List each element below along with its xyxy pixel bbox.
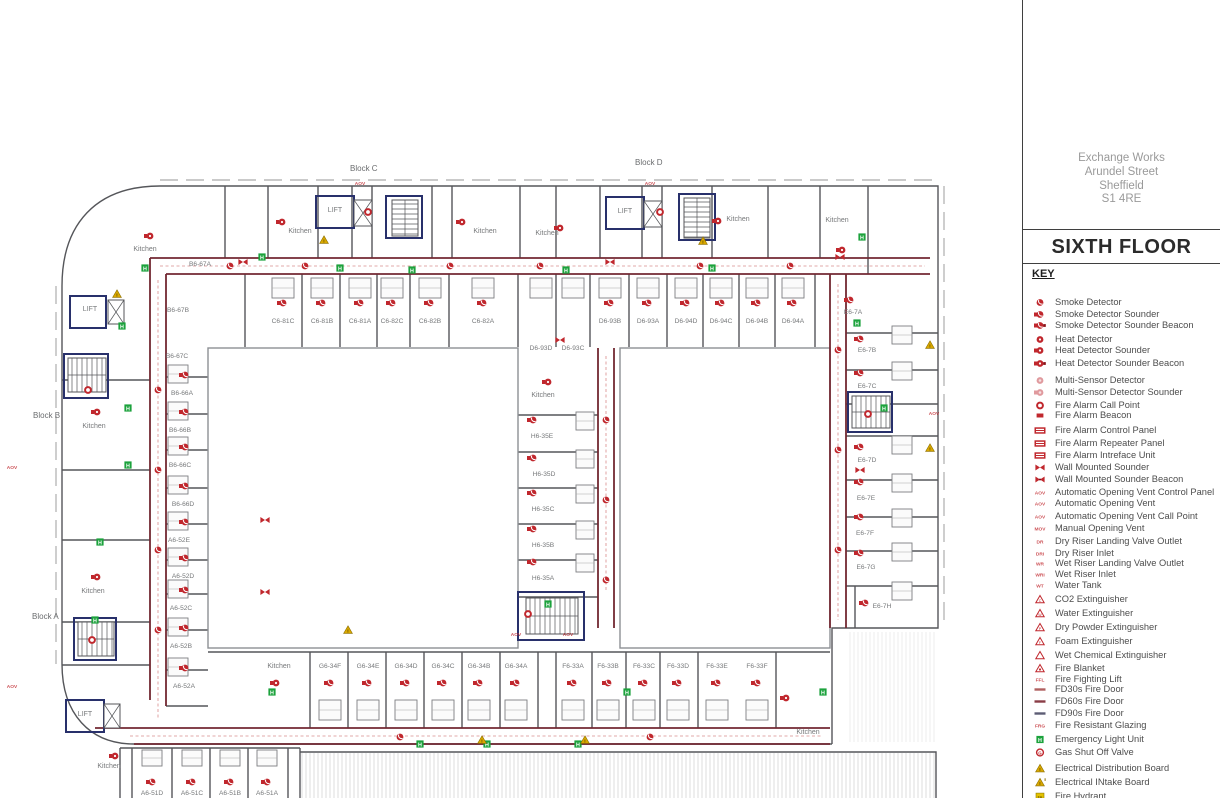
legend-label: FD30s Fire Door (1055, 684, 1124, 694)
room-label: G6-34C (431, 663, 454, 670)
svg-text:H: H (1038, 737, 1042, 743)
smoke-detector-icon (155, 547, 162, 554)
room-label: A6-52D (172, 573, 195, 580)
svg-text:!: ! (116, 293, 117, 298)
electrical-board-icon: ! (926, 341, 935, 349)
emergency-light-icon: H (91, 616, 98, 624)
smoke-detector-sounder-icon (186, 779, 195, 786)
legend-label: FD60s Fire Door (1055, 696, 1124, 706)
kitchen-label: Kitchen (473, 228, 496, 235)
block-label: Block A (32, 612, 59, 621)
legend-label: Dry Riser Landing Valve Outlet (1055, 536, 1182, 546)
fd30s-fire-door-icon (1032, 684, 1047, 695)
floor-title: SIXTH FLOOR (1023, 236, 1220, 259)
block-label: Block B (33, 411, 60, 420)
smoke-detector-sounder-icon (854, 514, 863, 521)
heat-detector-sounder-icon (270, 680, 279, 687)
legend-item: Wall Mounted Sounder Beacon (1032, 473, 1183, 485)
svg-text:AOV: AOV (645, 181, 656, 187)
emergency-light-icon: H (336, 264, 343, 272)
svg-text:H: H (338, 266, 342, 272)
legend-item: DRDry Riser Landing Valve Outlet (1032, 535, 1182, 547)
svg-text:H: H (625, 690, 629, 696)
wall-sounder-icon (835, 254, 844, 260)
smoke-detector-sounder-icon (854, 336, 863, 343)
room-label: E6-7G (856, 564, 875, 571)
svg-text:G: G (1038, 750, 1042, 755)
room-label: F6-33F (746, 663, 767, 670)
automatic-opening-vent-icon: AOV (1032, 498, 1047, 509)
legend-label: Heat Detector Sounder Beacon (1055, 358, 1184, 368)
smoke-detector-sounder-icon (261, 779, 270, 786)
lift-label: LIFT (328, 207, 343, 214)
wall-sounder-icon (855, 467, 864, 473)
kitchen-label: Kitchen (825, 217, 848, 224)
room-label: D6-93C (562, 345, 585, 352)
staircase (526, 598, 578, 634)
smoke-detector-sounder-icon (642, 300, 651, 307)
gas-shut-off-valve-icon: G (1032, 747, 1047, 758)
foam-extinguisher-icon: F (1032, 636, 1047, 647)
room-label: E6-7C (858, 383, 877, 390)
smoke-detector-sounder-icon (473, 680, 482, 687)
svg-text:!: ! (323, 239, 324, 244)
legend-label: Heat Detector (1055, 334, 1112, 344)
smoke-detector-sounder-icon (638, 680, 647, 687)
smoke-detector-sounder-icon (224, 779, 233, 786)
svg-text:AOV: AOV (7, 465, 18, 471)
heat-detector-sounder-icon (91, 409, 100, 416)
room-label: F6-33B (597, 663, 619, 670)
emergency-light-icon: H (623, 688, 630, 696)
smoke-detector-icon (835, 347, 842, 354)
legend-label: Wet Riser Inlet (1055, 569, 1116, 579)
kitchen-label: Kitchen (81, 588, 104, 595)
svg-text:WR: WR (1036, 561, 1045, 567)
legend-item: HEmergency Light Unit (1032, 733, 1144, 745)
smoke-detector-sounder-icon (510, 680, 519, 687)
courtyard (208, 348, 518, 648)
room-label: A6-51D (141, 790, 164, 797)
fire-hydrant-icon: FH (1032, 791, 1047, 798)
fire-alarm-call-point-icon (85, 387, 91, 393)
emergency-light-icon: H (268, 688, 275, 696)
legend-item: !Electrical Distribution Board (1032, 762, 1169, 774)
room-label: D6-94D (675, 318, 698, 325)
heat-detector-sounder-icon (144, 233, 153, 240)
courtyard (620, 348, 830, 648)
svg-text:H: H (882, 406, 886, 412)
emergency-light-unit-icon: H (1032, 734, 1047, 745)
divider (1023, 263, 1220, 264)
aov-tag: AOV (511, 632, 522, 638)
heat-detector-sounder-icon (276, 219, 285, 226)
smoke-detector-icon (302, 263, 309, 270)
fire-plan-sheet: Block CBlock DBlock BBlock AB6-67AB6-67B… (0, 0, 1220, 798)
svg-text:H: H (120, 324, 124, 330)
room-label: G6-34B (468, 663, 491, 670)
room-label: C6-81B (311, 318, 334, 325)
address-line: Arundel Street (1023, 166, 1220, 180)
electrical-board-icon: ! (478, 736, 487, 744)
svg-text:!: ! (1039, 767, 1040, 772)
room-label: E6-7E (857, 495, 876, 502)
legend-item: Fire Alarm Beacon (1032, 409, 1131, 421)
smoke-detector-icon (155, 467, 162, 474)
svg-text:!: ! (481, 739, 482, 744)
staircase (392, 200, 418, 236)
svg-text:H: H (855, 321, 859, 327)
legend-label: Electrical Distribution Board (1055, 763, 1169, 773)
aov-tag: AOV (645, 181, 656, 187)
address-line: Sheffield (1023, 180, 1220, 194)
smoke-detector-sounder-icon (477, 300, 486, 307)
room-label: F6-33D (667, 663, 689, 670)
room-label: A6-52B (170, 643, 193, 650)
smoke-detector-sounder-icon (316, 300, 325, 307)
smoke-detector-icon (787, 263, 794, 270)
legend-label: Foam Extinguisher (1055, 636, 1133, 646)
room-label: H6-35C (532, 506, 555, 513)
legend-label: Wet Riser Landing Valve Outlet (1055, 558, 1184, 568)
smoke-detector-sounder-icon (324, 680, 333, 687)
svg-text:AOV: AOV (7, 684, 18, 690)
fd60s-fire-door-icon (1032, 696, 1047, 707)
emergency-light-icon: H (853, 319, 860, 327)
svg-text:AOV: AOV (355, 181, 366, 187)
kitchen-label: Kitchen (133, 246, 156, 253)
address-line: Exchange Works (1023, 152, 1220, 166)
legend-label: Fire Alarm Repeater Panel (1055, 438, 1165, 448)
smoke-detector-icon (697, 263, 704, 270)
svg-text:AOV: AOV (1034, 501, 1045, 507)
kitchen-label: Kitchen (82, 423, 105, 430)
legend-item: FHFire Hydrant (1032, 790, 1106, 798)
fire-alarm-call-point-icon (657, 209, 663, 215)
legend-item: FD30s Fire Door (1032, 683, 1124, 695)
svg-text:H: H (270, 690, 274, 696)
fire-alarm-beacon-icon (1032, 410, 1047, 421)
heat-detector-sounder-icon (780, 695, 789, 702)
smoke-detector-sounder-icon (1032, 309, 1047, 320)
legend-label: Manual Opening Vent (1055, 523, 1144, 533)
lift-shaft (108, 300, 124, 324)
smoke-detector-sounder-icon (424, 300, 433, 307)
smoke-detector-icon (155, 627, 162, 634)
legend-item: WWater Extinguisher (1032, 607, 1133, 619)
emergency-light-icon: H (858, 233, 865, 241)
legend-label: Wall Mounted Sounder (1055, 462, 1149, 472)
legend-item: Fire Alarm Intreface Unit (1032, 449, 1155, 461)
room-label: B6-66B (169, 427, 192, 434)
svg-text:!: ! (929, 447, 930, 452)
legend-label: Fire Alarm Control Panel (1055, 425, 1156, 435)
heat-detector-sounder-icon (836, 247, 845, 254)
smoke-detector-sounder-icon (602, 680, 611, 687)
smoke-detector-sounder-icon (711, 680, 720, 687)
roof-terrace (301, 753, 936, 798)
svg-text:H: H (576, 742, 580, 748)
legend-item: MOVManual Opening Vent (1032, 522, 1144, 534)
svg-text:!: ! (347, 629, 348, 634)
room-label: B6-66A (171, 390, 194, 397)
room-label: D6-94A (782, 318, 805, 325)
emergency-light-icon: H (141, 264, 148, 272)
smoke-detector-icon (155, 387, 162, 394)
legend-label: Fire Alarm Intreface Unit (1055, 450, 1155, 460)
smoke-detector-sounder-icon (751, 680, 760, 687)
lift-shaft (104, 704, 120, 728)
smoke-detector-sounder-icon (527, 490, 536, 497)
svg-text:H: H (546, 602, 550, 608)
legend-item: AOVAutomatic Opening Vent (1032, 497, 1155, 509)
legend-item: PDry Powder Extinguisher (1032, 621, 1157, 633)
heat-detector-sounder-beacon-icon (1032, 358, 1047, 369)
wall-sounder-icon (605, 259, 614, 265)
svg-text:DR: DR (1036, 539, 1043, 545)
legend-label: Dry Powder Extinguisher (1055, 622, 1157, 632)
legend-label: Wall Mounted Sounder Beacon (1055, 474, 1183, 484)
legend-item: Multi-Sensor Detector (1032, 374, 1145, 386)
legend-label: Water Tank (1055, 580, 1102, 590)
legend-label: Multi-Sensor Detector (1055, 375, 1145, 385)
smoke-detector-sounder-icon (604, 300, 613, 307)
svg-text:AOV: AOV (1034, 514, 1045, 520)
svg-text:H: H (410, 268, 414, 274)
smoke-detector-sounder-icon (715, 300, 724, 307)
lift-label: LIFT (618, 208, 633, 215)
legend-label: Multi-Sensor Detector Sounder (1055, 387, 1183, 397)
kitchen-label: Kitchen (535, 230, 558, 237)
legend-label: Fire Hydrant (1055, 791, 1106, 798)
automatic-opening-vent-call-point-icon: AOV (1032, 511, 1047, 522)
key-heading: KEY (1032, 268, 1055, 280)
legend-item: AOVAutomatic Opening Vent Call Point (1032, 510, 1198, 522)
emergency-light-icon: H (124, 461, 131, 469)
wet-riser-landing-valve-outlet-icon: WR (1032, 558, 1047, 569)
smoke-detector-sounder-icon (672, 680, 681, 687)
room-label: G6-34D (394, 663, 417, 670)
svg-text:H: H (126, 406, 130, 412)
emergency-light-icon: H (819, 688, 826, 696)
smoke-detector-sounder-icon (680, 300, 689, 307)
svg-text:FRG: FRG (1034, 723, 1044, 729)
electrical-board-icon: ! (113, 290, 122, 298)
fire-alarm-call-point-icon (865, 411, 871, 417)
room-label: D6-94C (710, 318, 733, 325)
room-label: H6-35D (533, 471, 556, 478)
room-label: G6-34A (505, 663, 528, 670)
aov-tag: AOV (929, 411, 940, 417)
heat-detector-sounder-icon (91, 574, 100, 581)
room-label: D6-93D (530, 345, 553, 352)
kitchen-label: Kitchen (726, 216, 749, 223)
smoke-detector-sounder-icon (527, 417, 536, 424)
legend-item: CCO2 Extinguisher (1032, 593, 1128, 605)
heat-detector-sounder-icon (109, 753, 118, 760)
electrical-intake-board-icon: ! (1032, 777, 1047, 788)
room-label: H6-35B (532, 542, 555, 549)
aov-tag: AOV (7, 684, 18, 690)
emergency-light-icon: H (544, 600, 551, 608)
block-label: Block C (350, 164, 378, 173)
heat-detector-sounder-icon (542, 379, 551, 386)
smoke-detector-icon (537, 263, 544, 270)
smoke-detector-sounder-icon (527, 455, 536, 462)
lift-label: LIFT (83, 306, 98, 313)
svg-text:AOV: AOV (929, 411, 940, 417)
wall-sounder-icon (238, 259, 247, 265)
smoke-detector-sounder-icon (854, 444, 863, 451)
co2-extinguisher-icon: C (1032, 594, 1047, 605)
legend-item: !Electrical INtake Board (1032, 776, 1150, 788)
water-tank-icon: WT (1032, 580, 1047, 591)
wall-mounted-sounder-beacon-icon (1032, 474, 1047, 485)
smoke-detector-icon (447, 263, 454, 270)
legend-item: Fire Alarm Control Panel (1032, 424, 1156, 436)
roof-area (848, 632, 936, 742)
smoke-detector-icon (603, 417, 610, 424)
svg-text:H: H (821, 690, 825, 696)
smoke-detector-sounder-icon (567, 680, 576, 687)
fire-alarm-control-panel-icon (1032, 425, 1047, 436)
legend-label: Smoke Detector Sounder (1055, 309, 1159, 319)
room-label: A6-51A (256, 790, 279, 797)
room-label: F6-33A (562, 663, 584, 670)
svg-text:H: H (98, 540, 102, 546)
kitchen-label: Kitchen (267, 663, 290, 670)
heat-detector-sounder-icon (456, 219, 465, 226)
legend-label: Gas Shut Off Valve (1055, 747, 1134, 757)
svg-text:H: H (418, 742, 422, 748)
svg-text:H: H (260, 255, 264, 261)
svg-text:C: C (1038, 599, 1041, 603)
legend-label: CO2 Extinguisher (1055, 594, 1128, 604)
title-block-panel: Exchange Works Arundel Street Sheffield … (1022, 0, 1220, 798)
emergency-light-icon: H (96, 538, 103, 546)
smoke-detector-sounder-icon (859, 600, 868, 607)
room-label: E6-7A (844, 309, 863, 316)
svg-text:!: ! (1039, 781, 1040, 786)
smoke-detector-sounder-icon (400, 680, 409, 687)
emergency-light-icon: H (562, 266, 569, 274)
room-label: A6-51B (219, 790, 242, 797)
room-label: D6-93B (599, 318, 622, 325)
legend-item: Wet Chemical Extinguisher (1032, 649, 1166, 661)
aov-tag: AOV (563, 632, 574, 638)
room-label: E6-7H (873, 603, 892, 610)
automatic-opening-vent-control-panel-icon: AOV (1032, 487, 1047, 498)
emergency-light-icon: H (118, 322, 125, 330)
room-label: D6-93A (637, 318, 660, 325)
smoke-detector-sounder-icon (146, 779, 155, 786)
room-label: F6-33E (706, 663, 728, 670)
smoke-detector-sounder-icon (787, 300, 796, 307)
room-label: A6-52C (170, 605, 193, 612)
legend-item: FD60s Fire Door (1032, 695, 1124, 707)
legend-item: FRGFire Resistant Glazing (1032, 719, 1146, 731)
room-label: G6-34E (357, 663, 380, 670)
block-label: Block D (635, 158, 663, 167)
legend-item: FD90s Fire Door (1032, 707, 1124, 719)
room-label: C6-82A (472, 318, 495, 325)
aov-tag: AOV (7, 465, 18, 471)
smoke-detector-sounder-icon (362, 680, 371, 687)
svg-text:WRI: WRI (1035, 572, 1045, 578)
smoke-detector-sounder-icon (527, 526, 536, 533)
room-label: A6-51C (181, 790, 204, 797)
lift-label: LIFT (78, 711, 93, 718)
aov-tag: AOV (355, 181, 366, 187)
room-label: F6-33C (633, 663, 655, 670)
heat-detector-sounder-icon (1032, 345, 1047, 356)
smoke-detector-icon (397, 734, 404, 741)
svg-text:MOV: MOV (1034, 526, 1046, 532)
wall-sounder-icon (555, 337, 564, 343)
fire-alarm-call-point-icon (365, 209, 371, 215)
room-label: E6-7F (856, 530, 874, 537)
legend-item: Heat Detector Sounder Beacon (1032, 357, 1184, 369)
svg-text:W: W (1038, 613, 1042, 617)
heat-detector-icon (1032, 334, 1047, 345)
svg-text:!: ! (929, 344, 930, 349)
smoke-detector-sounder-icon (751, 300, 760, 307)
kitchen-label: Kitchen (97, 763, 120, 770)
legend-item: Smoke Detector Sounder Beacon (1032, 319, 1194, 331)
legend-label: Electrical INtake Board (1055, 777, 1150, 787)
legend-label: Automatic Opening Vent Call Point (1055, 511, 1198, 521)
legend-label: Smoke Detector Sounder Beacon (1055, 320, 1194, 330)
electrical-board-icon: ! (581, 736, 590, 744)
smoke-detector-icon (227, 263, 234, 270)
smoke-detector-sounder-icon (386, 300, 395, 307)
fire-alarm-call-point-icon (525, 611, 531, 617)
smoke-detector-icon (835, 447, 842, 454)
multi-sensor-detector-icon (1032, 375, 1047, 386)
emergency-light-icon: H (124, 404, 131, 412)
kitchen-label: Kitchen (288, 228, 311, 235)
legend-label: Fire Resistant Glazing (1055, 720, 1146, 730)
smoke-detector-icon (603, 577, 610, 584)
dry-riser-landing-valve-outlet-icon: DR (1032, 536, 1047, 547)
legend-item: Smoke Detector (1032, 296, 1122, 308)
smoke-detector-icon (647, 734, 654, 741)
heat-detector-sounder-icon (712, 218, 721, 225)
smoke-detector-sounder-icon (437, 680, 446, 687)
emergency-light-icon: H (708, 264, 715, 272)
manual-opening-vent-icon: MOV (1032, 523, 1047, 534)
fire-resistant-glazing-icon: FRG (1032, 720, 1047, 731)
svg-text:AOV: AOV (1034, 490, 1045, 496)
legend-label: Emergency Light Unit (1055, 734, 1144, 744)
kitchen-label: Kitchen (796, 729, 819, 736)
svg-text:H: H (143, 266, 147, 272)
staircase (684, 198, 710, 238)
legend-item: Wall Mounted Sounder (1032, 461, 1149, 473)
room-label: C6-81A (349, 318, 372, 325)
fire-alarm-call-point-icon (89, 637, 95, 643)
emergency-light-icon: H (258, 253, 265, 261)
smoke-detector-icon (835, 547, 842, 554)
room-label: B6-67B (167, 307, 190, 314)
room-label: C6-81C (272, 318, 295, 325)
room-label: D6-94B (746, 318, 769, 325)
legend-label: Fire Blanket (1055, 663, 1105, 673)
wall-mounted-sounder-icon (1032, 462, 1047, 473)
legend-label: Fire Alarm Beacon (1055, 410, 1131, 420)
emergency-light-icon: H (408, 266, 415, 274)
room-label: C6-82B (419, 318, 442, 325)
